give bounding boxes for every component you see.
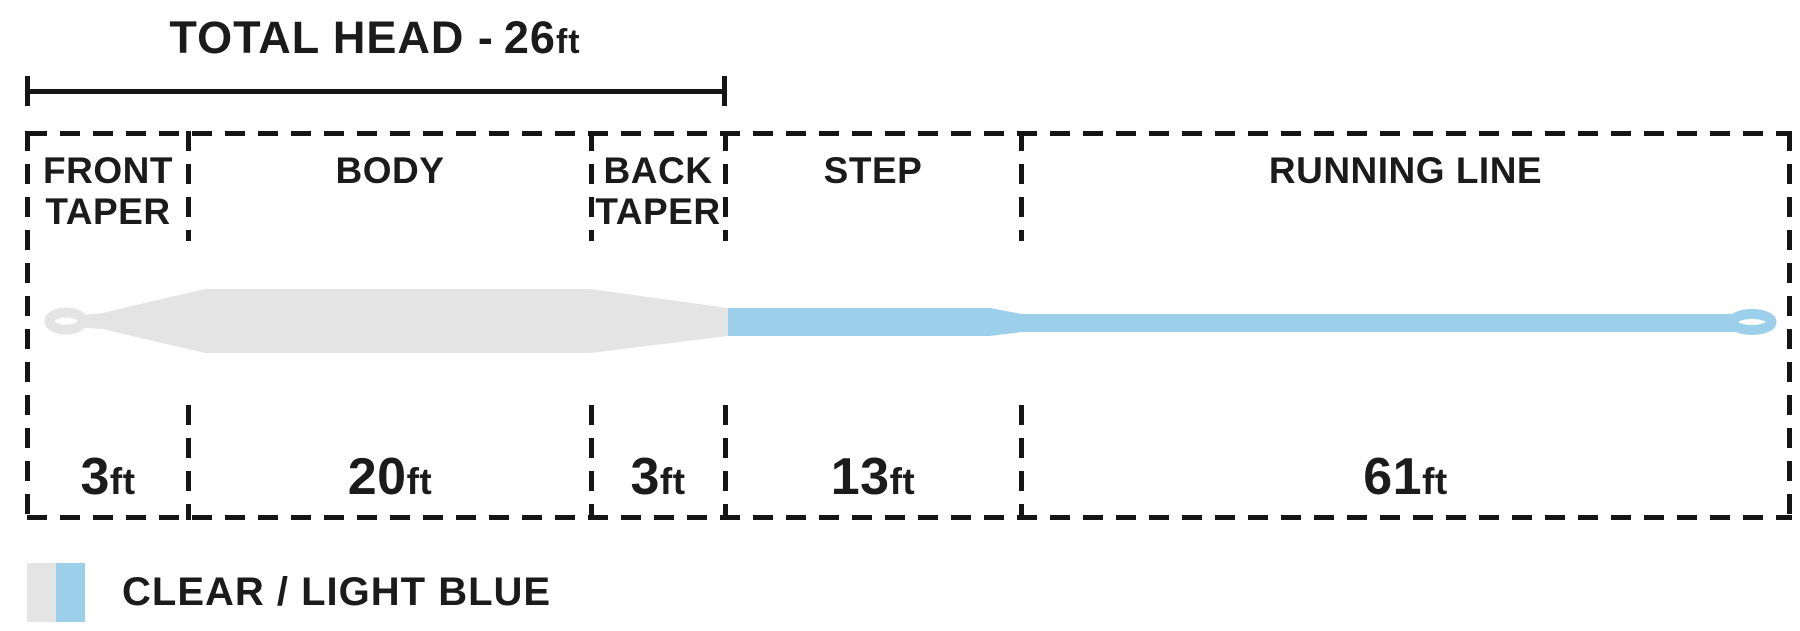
legend-light-blue-swatch <box>56 563 85 622</box>
line-head-shape <box>84 289 728 353</box>
length-unit: ft <box>890 461 916 503</box>
line-rear-shape <box>728 308 1737 336</box>
fly-line-graphic <box>0 0 1800 631</box>
legend-clear-swatch <box>27 563 56 622</box>
length-value: 61 <box>1363 447 1422 507</box>
length-unit: ft <box>407 461 433 503</box>
length-value: 3 <box>630 447 659 507</box>
section-length-back-taper: 3ft <box>591 447 725 507</box>
length-unit: ft <box>660 461 686 503</box>
legend-label: CLEAR / LIGHT BLUE <box>122 563 551 622</box>
line-back-loop <box>1733 314 1772 330</box>
section-length-running-line: 61ft <box>1021 447 1790 507</box>
length-value: 13 <box>831 447 890 507</box>
section-length-front-taper: 3ft <box>27 447 189 507</box>
length-value: 20 <box>348 447 407 507</box>
legend-color-swatch <box>27 563 85 622</box>
fly-line-taper-diagram: TOTAL HEAD - 26 ft FRONT TAPER BODY BACK… <box>0 0 1800 631</box>
length-value: 3 <box>80 447 109 507</box>
length-unit: ft <box>110 461 136 503</box>
section-length-step: 13ft <box>725 447 1021 507</box>
length-unit: ft <box>1422 461 1448 503</box>
section-length-body: 20ft <box>189 447 591 507</box>
line-front-loop <box>50 313 83 330</box>
